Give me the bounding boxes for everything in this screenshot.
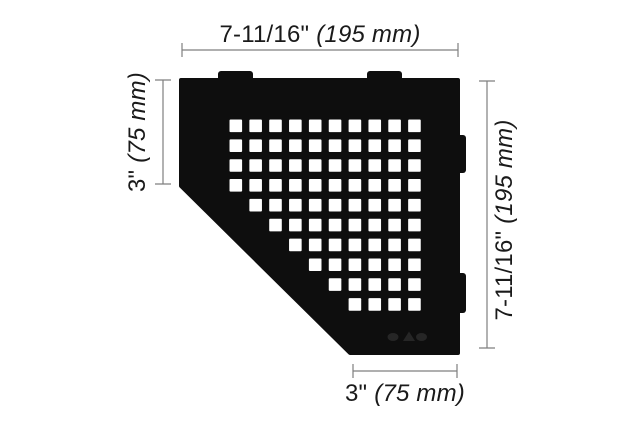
perforation-hole: [349, 239, 362, 252]
perforation-hole: [249, 139, 262, 152]
perforation-hole: [329, 278, 342, 291]
perforation-hole: [230, 139, 243, 152]
perforation-hole: [368, 179, 381, 192]
logo-mark-left: [388, 333, 399, 341]
perforation-hole: [309, 159, 322, 172]
perforation-hole: [289, 239, 302, 252]
perforation-hole: [249, 120, 262, 133]
perforation-hole: [349, 278, 362, 291]
perforation-hole: [349, 298, 362, 311]
perforation-hole: [349, 219, 362, 232]
perforation-hole: [349, 120, 362, 133]
perforation-hole: [249, 159, 262, 172]
perforation-hole: [329, 120, 342, 133]
perforation-hole: [408, 219, 421, 232]
perforation-hole: [329, 159, 342, 172]
shelf: [181, 71, 466, 353]
perforation-hole: [388, 278, 401, 291]
perforation-hole: [368, 258, 381, 271]
perforation-hole: [349, 139, 362, 152]
perforation-hole: [388, 219, 401, 232]
perforation-hole: [368, 199, 381, 212]
perforation-hole: [388, 199, 401, 212]
perforation-hole: [368, 219, 381, 232]
perforation-hole: [309, 199, 322, 212]
perforation-hole: [408, 239, 421, 252]
perforation-hole: [309, 219, 322, 232]
perforation-hole: [269, 199, 282, 212]
perforation-hole: [309, 258, 322, 271]
dimension-label-bottom-mm: (75 mm): [374, 380, 465, 407]
perforation-hole: [269, 179, 282, 192]
dimension-label-bottom: 3"(75 mm): [345, 380, 465, 407]
perforation-hole: [269, 139, 282, 152]
perforation-hole: [349, 159, 362, 172]
perforation-hole: [368, 239, 381, 252]
dimension-right: 7-11/16"(195 mm): [479, 81, 518, 348]
perforation-hole: [329, 258, 342, 271]
perforation-hole: [289, 139, 302, 152]
perforation-hole: [388, 258, 401, 271]
perforation-hole: [230, 159, 243, 172]
perforation-hole: [289, 120, 302, 133]
perforation-hole: [289, 199, 302, 212]
perforation-hole: [329, 219, 342, 232]
perforation-hole: [368, 139, 381, 152]
dimension-line-left: [155, 80, 171, 184]
dimension-bottom: 3"(75 mm): [345, 364, 465, 407]
perforation-hole: [408, 159, 421, 172]
dimension-label-left-inches: 3": [124, 170, 151, 192]
perforation-hole: [388, 179, 401, 192]
perforation-hole: [269, 120, 282, 133]
perforation-hole: [368, 120, 381, 133]
perforation-hole: [388, 120, 401, 133]
perforation-hole: [230, 120, 243, 133]
dimension-label-right-mm: (195 mm): [491, 119, 518, 223]
drawing-canvas: 7-11/16"(195 mm) 3"(75 mm) 7-11/16"(195 …: [0, 0, 640, 433]
perforation-hole: [408, 199, 421, 212]
perforation-hole: [349, 179, 362, 192]
dimension-label-top-inches: 7-11/16": [219, 21, 309, 48]
perforation-hole: [408, 179, 421, 192]
perforation-hole: [388, 298, 401, 311]
dimension-top: 7-11/16"(195 mm): [182, 21, 458, 57]
perforation-hole: [289, 179, 302, 192]
perforation-hole: [368, 278, 381, 291]
perforation-hole: [368, 298, 381, 311]
perforation-hole: [249, 199, 262, 212]
perforation-hole: [309, 139, 322, 152]
perforation-hole: [329, 139, 342, 152]
perforation-hole: [349, 258, 362, 271]
perforation-hole: [388, 159, 401, 172]
perforation-hole: [230, 179, 243, 192]
dimension-line-bottom: [353, 364, 457, 378]
perforation-hole: [309, 179, 322, 192]
perforation-hole: [329, 179, 342, 192]
perforation-hole: [408, 120, 421, 133]
dimension-label-left-mm: (75 mm): [124, 72, 151, 163]
dimension-label-top: 7-11/16"(195 mm): [219, 21, 420, 48]
perforation-hole: [388, 139, 401, 152]
perforation-hole: [269, 219, 282, 232]
perforation-hole: [408, 278, 421, 291]
perforation-hole: [269, 159, 282, 172]
technical-drawing: 7-11/16"(195 mm) 3"(75 mm) 7-11/16"(195 …: [0, 0, 640, 433]
perforation-hole: [408, 298, 421, 311]
dimension-label-right: 7-11/16"(195 mm): [491, 119, 518, 320]
perforation-hole: [309, 239, 322, 252]
perforation-hole: [388, 239, 401, 252]
perforation-hole: [329, 239, 342, 252]
perforation-hole: [249, 179, 262, 192]
dimension-label-right-inches: 7-11/16": [491, 231, 518, 321]
perforation-hole: [289, 219, 302, 232]
perforation-hole: [329, 199, 342, 212]
perforation-hole: [368, 159, 381, 172]
perforation-hole: [349, 199, 362, 212]
perforation-hole: [309, 120, 322, 133]
dimension-label-top-mm: (195 mm): [316, 21, 420, 48]
dimension-label-left: 3"(75 mm): [124, 72, 151, 192]
dimension-left: 3"(75 mm): [124, 72, 171, 192]
perforation-hole: [289, 159, 302, 172]
perforation-hole: [408, 139, 421, 152]
logo-mark-right: [416, 333, 427, 341]
perforation-hole: [408, 258, 421, 271]
dimension-label-bottom-inches: 3": [345, 380, 367, 407]
